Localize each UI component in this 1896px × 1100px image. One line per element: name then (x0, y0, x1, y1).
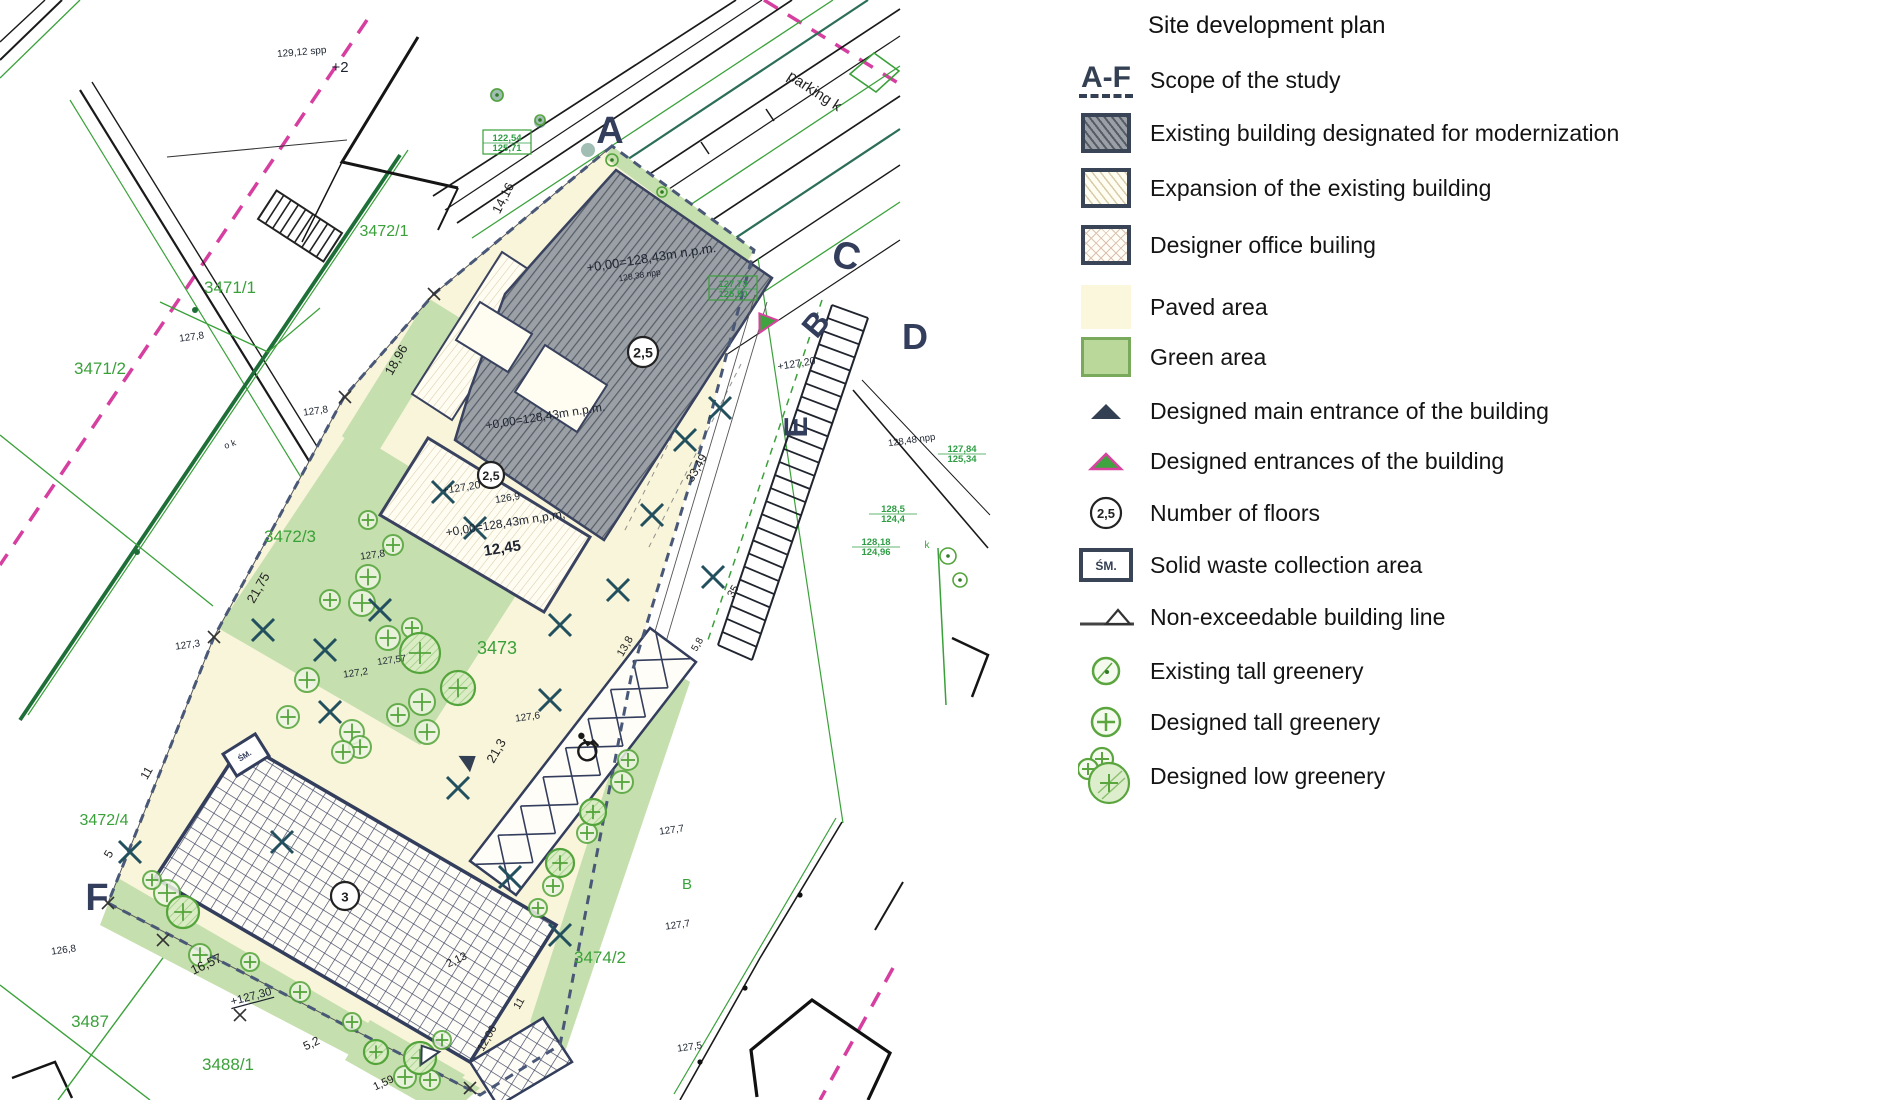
designed-low-greenery-icon (364, 1040, 388, 1064)
utility-label: 122,54125,71 (483, 130, 531, 154)
designed-low-greenery-icon (167, 896, 199, 928)
designed-tall-greenery-icon (618, 750, 638, 770)
road-label: parking k (784, 68, 845, 116)
site-plan-map: 2,52,53122,54125,71127,73125,50128,18124… (0, 0, 1896, 1100)
svg-text:2,5: 2,5 (482, 469, 499, 483)
spot-height: 128,48 npp (887, 432, 936, 450)
parcel-label: 3474/2 (574, 948, 626, 967)
floor-marker: 2,5 (628, 337, 658, 367)
dimension-label: 5 (101, 847, 117, 860)
section-letter: E (778, 416, 814, 437)
parcel-label: 3487 (71, 1012, 109, 1031)
dimension-label: 5,8 (690, 636, 707, 654)
designed-tall-greenery-icon (356, 565, 380, 589)
spot-height: 129,12 spp (277, 45, 328, 60)
floor-marker: 2,5 (478, 462, 504, 488)
designed-tall-greenery-icon (332, 741, 354, 763)
x-mark-icon (702, 566, 724, 588)
existing-tall-greenery-icon (953, 573, 967, 587)
designed-low-greenery-icon (546, 849, 574, 877)
spot-height: k (925, 540, 931, 551)
designed-tall-greenery-icon (415, 720, 439, 744)
designed-tall-greenery-icon (387, 704, 409, 726)
section-letter: A (596, 110, 623, 152)
utility-label: 128,18124,96 (852, 537, 900, 558)
parcel-label: 3471/1 (204, 278, 256, 297)
x-mark-icon (234, 1009, 246, 1021)
designed-tall-greenery-icon (290, 982, 310, 1002)
designed-tall-greenery-icon (376, 626, 400, 650)
parcel-label: 3472/4 (80, 812, 129, 829)
floor-marker: 3 (331, 882, 359, 910)
designed-low-greenery-icon (580, 799, 606, 825)
designed-tall-greenery-icon (143, 871, 161, 889)
designed-tall-greenery-icon (383, 535, 403, 555)
svg-text:3: 3 (341, 889, 348, 904)
spot-height: 127,5 (676, 1040, 703, 1054)
svg-text:2,5: 2,5 (633, 346, 653, 362)
svg-text:125,71: 125,71 (492, 143, 522, 154)
spot-height: 127,8 (302, 404, 329, 418)
spot-height: 127,8 (178, 330, 205, 344)
spot-height: 126,8 (50, 943, 77, 957)
designed-tall-greenery-icon (433, 1031, 451, 1049)
spot-height: 127,7 (664, 918, 691, 932)
section-letter: F (85, 877, 108, 919)
parcel-label: 3488/1 (202, 1055, 254, 1074)
dimension-label: 11 (137, 764, 156, 782)
spot-height: o k (223, 437, 238, 451)
section-letter: C (827, 233, 864, 281)
designed-tall-greenery-icon (241, 953, 259, 971)
site-plan-page: 2,52,53122,54125,71127,73125,50128,18124… (0, 0, 1896, 1100)
parcel-label: 3473 (477, 638, 517, 658)
svg-text:125,34: 125,34 (947, 454, 977, 465)
dimension-label: 35 (725, 583, 742, 600)
designed-tall-greenery-icon (611, 771, 633, 793)
designed-tall-greenery-icon (295, 668, 319, 692)
spot-height: 127,7 (658, 823, 685, 837)
parcel-label: 3471/2 (74, 359, 126, 378)
designed-tall-greenery-icon (343, 1013, 361, 1031)
parcel-label: B (682, 876, 692, 893)
parcel-label: 3472/3 (264, 527, 316, 546)
designed-tall-greenery-icon (320, 590, 340, 610)
section-letter: D (902, 316, 928, 357)
stairs-icon (258, 191, 342, 262)
existing-tall-greenery-icon (940, 548, 956, 564)
spot-height: 127,3 (174, 638, 201, 652)
designed-low-greenery-icon (441, 671, 475, 705)
svg-text:124,96: 124,96 (861, 547, 890, 558)
parcel-label: 3472/1 (360, 223, 409, 240)
designed-low-greenery-icon (400, 633, 440, 673)
designed-tall-greenery-icon (529, 899, 547, 917)
designed-tall-greenery-icon (359, 511, 377, 529)
designed-tall-greenery-icon (543, 876, 563, 896)
designed-tall-greenery-icon (277, 706, 299, 728)
svg-text:124,4: 124,4 (881, 514, 905, 525)
spot-height: +2 (331, 59, 348, 76)
designed-tall-greenery-icon (409, 689, 435, 715)
utility-label: 128,5124,4 (869, 504, 917, 525)
svg-text:125,50: 125,50 (718, 289, 747, 300)
utility-label: 127,84125,34 (938, 444, 986, 465)
